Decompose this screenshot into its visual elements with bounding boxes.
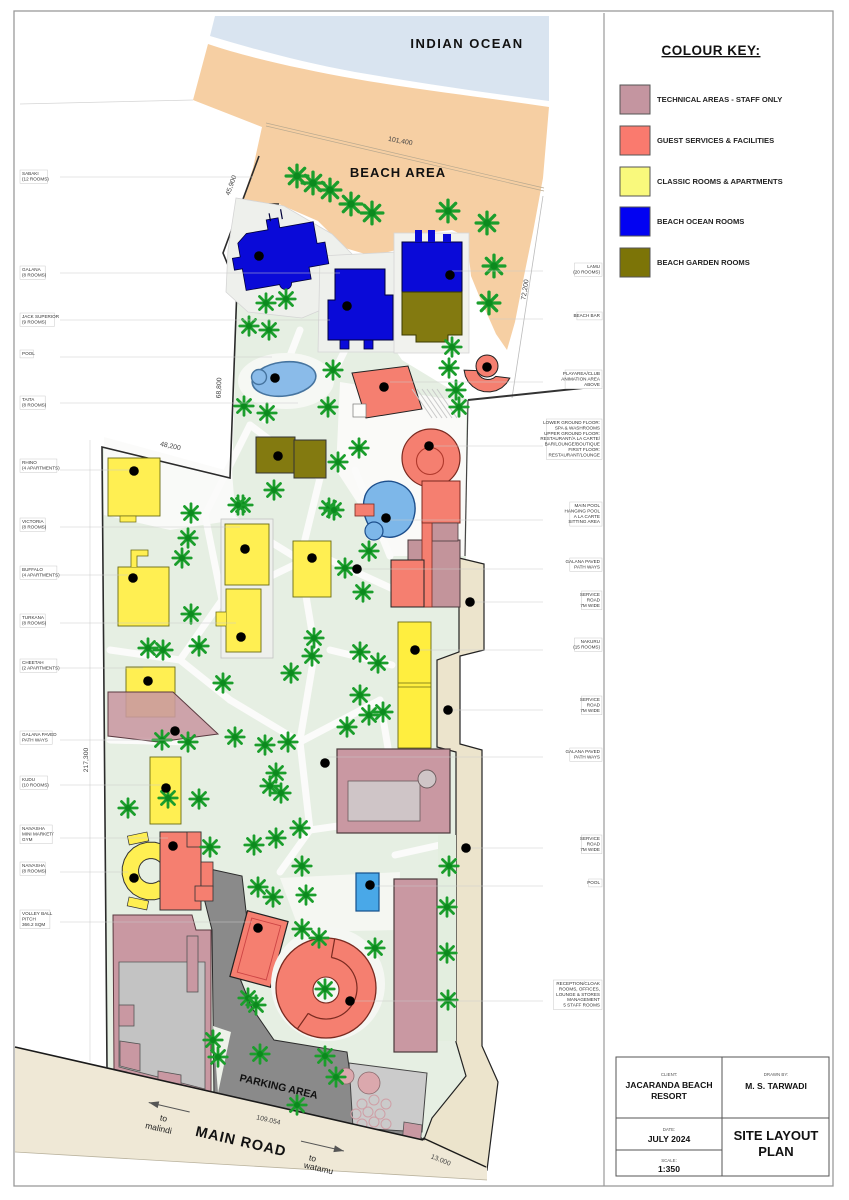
svg-text:7M WIDE: 7M WIDE bbox=[580, 847, 600, 852]
svg-text:ANIMATION AREA: ANIMATION AREA bbox=[561, 376, 601, 381]
svg-text:RESTAURANT/A LA CARTE/: RESTAURANT/A LA CARTE/ bbox=[540, 436, 600, 441]
svg-text:POOL: POOL bbox=[22, 351, 35, 356]
svg-text:KUDU: KUDU bbox=[22, 777, 35, 782]
svg-text:(4 APARTMENTS): (4 APARTMENTS) bbox=[22, 572, 60, 577]
svg-text:PATH WAYS: PATH WAYS bbox=[574, 754, 600, 759]
svg-text:7M WIDE: 7M WIDE bbox=[580, 603, 600, 608]
svg-text:BUFFALO: BUFFALO bbox=[22, 567, 43, 572]
svg-text:366.2 SQM: 366.2 SQM bbox=[22, 922, 45, 927]
svg-text:7M WIDE: 7M WIDE bbox=[580, 708, 600, 713]
svg-text:PITCH: PITCH bbox=[22, 916, 36, 921]
svg-text:ROOMS, OFFICES,: ROOMS, OFFICES, bbox=[559, 986, 600, 991]
svg-text:LOWER GROUND FLOOR:: LOWER GROUND FLOOR: bbox=[543, 420, 600, 425]
svg-text:1:350: 1:350 bbox=[658, 1164, 680, 1174]
svg-text:NAIVASHA: NAIVASHA bbox=[22, 826, 46, 831]
svg-text:GALANA PAVED: GALANA PAVED bbox=[565, 559, 600, 564]
svg-text:CLASSIC ROOMS & APARTMENTS: CLASSIC ROOMS & APARTMENTS bbox=[657, 177, 783, 186]
svg-text:RHINO: RHINO bbox=[22, 460, 37, 465]
svg-text:JULY 2024: JULY 2024 bbox=[648, 1134, 691, 1144]
svg-text:PLAN: PLAN bbox=[758, 1144, 793, 1159]
svg-text:(8 ROOMS): (8 ROOMS) bbox=[22, 272, 47, 277]
svg-text:GALANA PAVED: GALANA PAVED bbox=[22, 732, 57, 737]
svg-text:RECEPTION/CLOAK: RECEPTION/CLOAK bbox=[556, 981, 601, 986]
svg-text:BEACH OCEAN ROOMS: BEACH OCEAN ROOMS bbox=[657, 217, 744, 226]
svg-text:GALANA: GALANA bbox=[22, 267, 42, 272]
svg-text:(9 ROOMS): (9 ROOMS) bbox=[22, 319, 47, 324]
svg-text:(8 ROOMS): (8 ROOMS) bbox=[22, 868, 47, 873]
svg-text:LOUNGE & STORES: LOUNGE & STORES bbox=[556, 992, 600, 997]
svg-text:(12 ROOMS): (12 ROOMS) bbox=[22, 176, 49, 181]
svg-text:(10 ROOMS): (10 ROOMS) bbox=[22, 782, 49, 787]
svg-text:(2 APARTMENTS): (2 APARTMENTS) bbox=[22, 665, 60, 670]
svg-text:MINI MARKET/: MINI MARKET/ bbox=[22, 831, 54, 836]
svg-text:217,300: 217,300 bbox=[83, 748, 90, 773]
svg-text:(8 ROOMS): (8 ROOMS) bbox=[22, 620, 47, 625]
svg-text:SERVICE: SERVICE bbox=[580, 592, 600, 597]
svg-text:45,900: 45,900 bbox=[225, 174, 239, 196]
svg-text:SCALE:: SCALE: bbox=[661, 1158, 677, 1163]
svg-text:SERVICE: SERVICE bbox=[580, 836, 600, 841]
svg-text:5 STAFF ROOMS: 5 STAFF ROOMS bbox=[563, 1003, 600, 1008]
svg-text:SITE LAYOUT: SITE LAYOUT bbox=[734, 1128, 819, 1143]
svg-text:HANGING POOL: HANGING POOL bbox=[565, 508, 601, 513]
svg-text:GYM: GYM bbox=[22, 837, 33, 842]
svg-text:ROAD: ROAD bbox=[587, 841, 601, 846]
svg-text:48,200: 48,200 bbox=[159, 441, 181, 452]
svg-text:BEACH BAR: BEACH BAR bbox=[573, 313, 600, 318]
svg-text:RESTAURANT/LOUNGE: RESTAURANT/LOUNGE bbox=[549, 452, 600, 457]
svg-text:NAIVASHA: NAIVASHA bbox=[22, 863, 46, 868]
svg-text:(4 APARTMENTS): (4 APARTMENTS) bbox=[22, 465, 60, 470]
svg-text:GUEST SERVICES & FACILITIES: GUEST SERVICES & FACILITIES bbox=[657, 136, 774, 145]
svg-text:(15 ROOMS): (15 ROOMS) bbox=[573, 644, 600, 649]
svg-text:ROAD: ROAD bbox=[587, 597, 601, 602]
svg-text:(20 ROOMS): (20 ROOMS) bbox=[573, 269, 600, 274]
svg-text:TURKANA: TURKANA bbox=[22, 615, 45, 620]
svg-text:CHEETAH: CHEETAH bbox=[22, 660, 44, 665]
svg-text:(8 ROOMS): (8 ROOMS) bbox=[22, 524, 47, 529]
svg-text:GALANA PAVED: GALANA PAVED bbox=[565, 749, 600, 754]
svg-text:SABAKI: SABAKI bbox=[22, 171, 39, 176]
svg-text:MANAGEMENT: MANAGEMENT bbox=[567, 997, 600, 1002]
svg-text:MAIN POOL: MAIN POOL bbox=[574, 503, 600, 508]
svg-text:DATE:: DATE: bbox=[663, 1127, 676, 1132]
svg-text:M. S. TARWADI: M. S. TARWADI bbox=[745, 1081, 807, 1091]
svg-text:JACARANDA BEACH: JACARANDA BEACH bbox=[625, 1080, 712, 1090]
svg-text:SPA & WASHROOMS: SPA & WASHROOMS bbox=[555, 425, 600, 430]
svg-text:BEACH GARDEN ROOMS: BEACH GARDEN ROOMS bbox=[657, 258, 750, 267]
svg-text:DRAWN BY:: DRAWN BY: bbox=[764, 1072, 788, 1077]
svg-text:BEACH AREA: BEACH AREA bbox=[350, 165, 446, 180]
svg-text:TAITA: TAITA bbox=[22, 397, 35, 402]
svg-text:TECHNICAL AREAS - STAFF ONLY: TECHNICAL AREAS - STAFF ONLY bbox=[657, 95, 782, 104]
svg-text:68,800: 68,800 bbox=[216, 377, 224, 398]
svg-text:SITTING AREA: SITTING AREA bbox=[568, 519, 601, 524]
svg-text:LAMU: LAMU bbox=[587, 264, 600, 269]
svg-text:PATH WAYS: PATH WAYS bbox=[574, 564, 600, 569]
svg-text:PATH WAYS: PATH WAYS bbox=[22, 737, 48, 742]
svg-text:ABOVE: ABOVE bbox=[584, 382, 600, 387]
svg-text:(8 ROOMS): (8 ROOMS) bbox=[22, 402, 47, 407]
svg-text:BAR/LOUNGE/BOUTIQUE: BAR/LOUNGE/BOUTIQUE bbox=[545, 442, 600, 447]
svg-text:FIRST FLOOR:: FIRST FLOOR: bbox=[568, 447, 600, 452]
svg-text:VOLLEY BALL: VOLLEY BALL bbox=[22, 911, 53, 916]
svg-text:VICTORIA: VICTORIA bbox=[22, 519, 45, 524]
svg-text:CLIENT:: CLIENT: bbox=[661, 1072, 677, 1077]
svg-text:JACK SUPERIOR: JACK SUPERIOR bbox=[22, 314, 60, 319]
svg-text:NAKURU: NAKURU bbox=[581, 639, 600, 644]
svg-text:POOL: POOL bbox=[587, 880, 600, 885]
svg-text:UPPER GROUND FLOOR:: UPPER GROUND FLOOR: bbox=[544, 431, 600, 436]
svg-text:A LA CARTE: A LA CARTE bbox=[574, 514, 600, 519]
svg-text:INDIAN OCEAN: INDIAN OCEAN bbox=[410, 36, 523, 51]
svg-text:PLAYAREA/CLUB: PLAYAREA/CLUB bbox=[563, 371, 600, 376]
svg-text:RESORT: RESORT bbox=[651, 1091, 688, 1101]
svg-text:SERVICE: SERVICE bbox=[580, 697, 600, 702]
svg-text:COLOUR KEY:: COLOUR KEY: bbox=[662, 43, 761, 58]
svg-text:ROAD: ROAD bbox=[587, 702, 601, 707]
